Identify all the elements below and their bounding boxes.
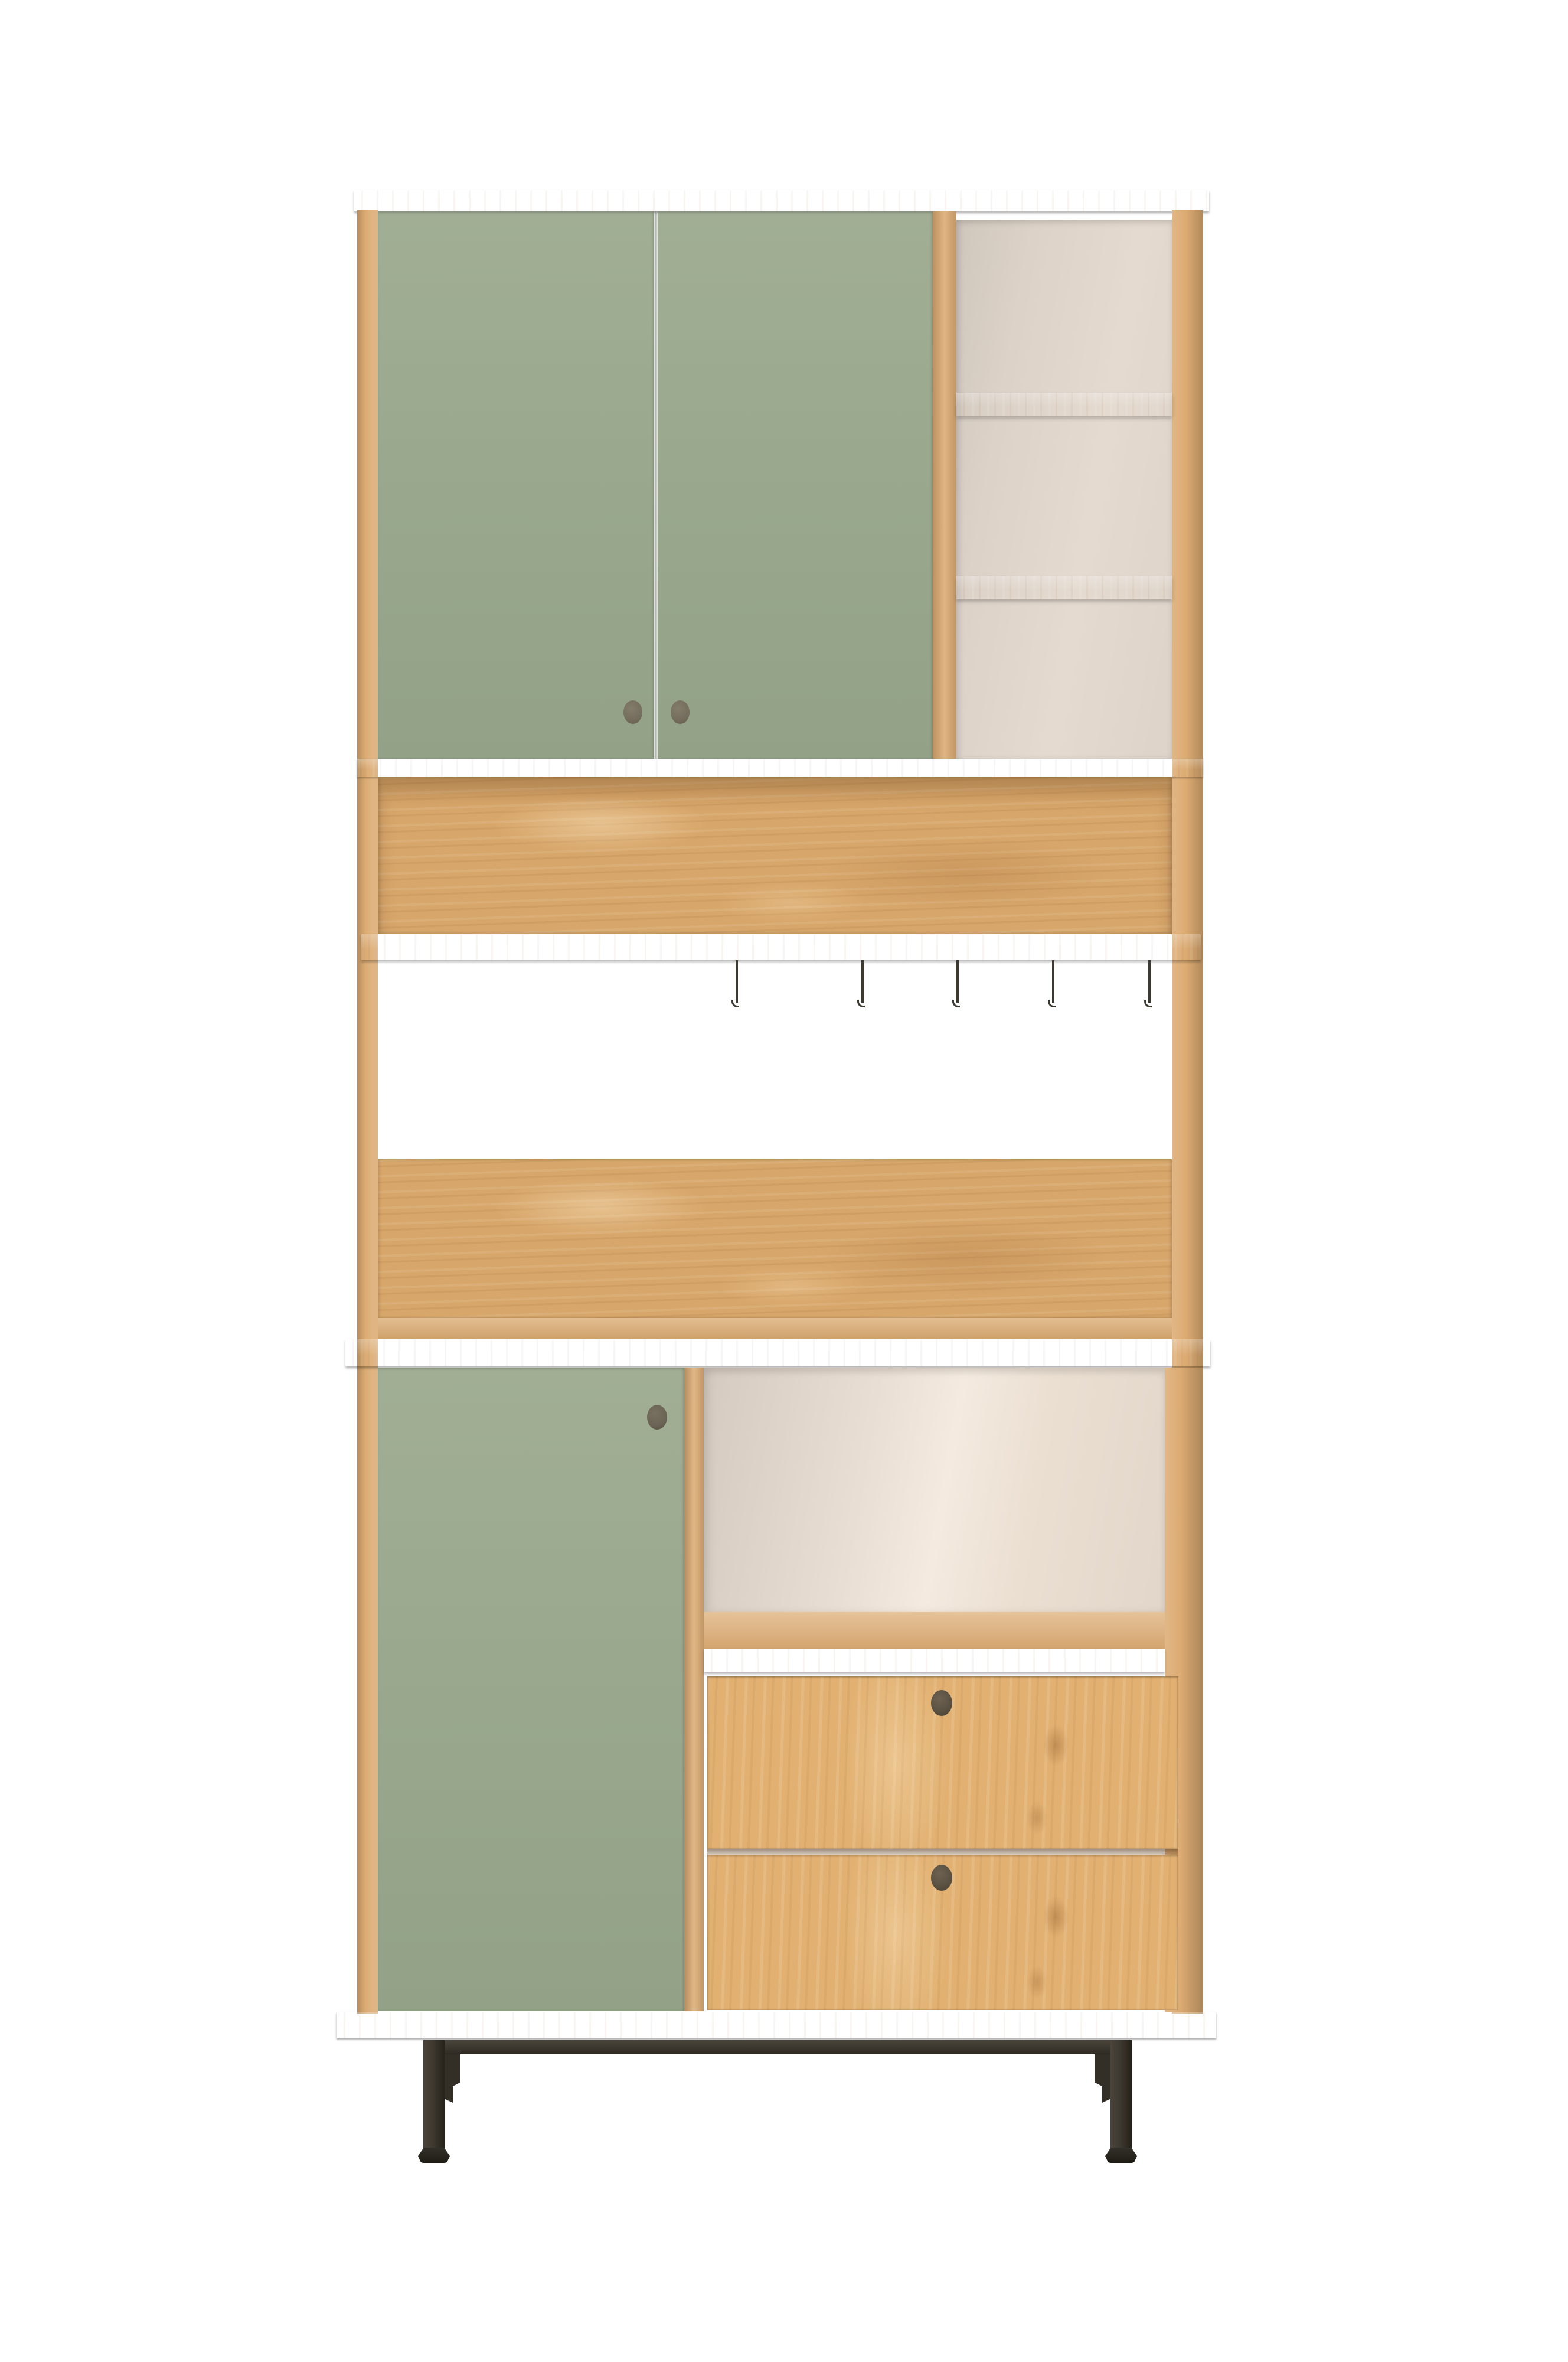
upper-door-left [378,211,654,759]
leg-foot-right [1105,2148,1137,2163]
upper-door-left-knob [623,700,642,724]
base-slab [337,2012,1216,2038]
upper-door-right [658,211,933,759]
hanging-hook-2 [861,960,864,1003]
lower-door-knob [647,1405,667,1430]
drawer-upper-knob [931,1690,952,1716]
drawer-gap [707,1849,1178,1855]
product-photo-scene [0,0,1568,2362]
leg-front-rail [423,2040,1132,2054]
upper-shelf-1 [956,393,1172,416]
leg-front-right [1110,2040,1132,2151]
niche-fascia-panel [378,777,1172,934]
hanging-hook-5 [1148,960,1151,1003]
drawer-shelf-surface [704,1612,1165,1649]
drawer-lower-knob [931,1865,952,1891]
upper-shelf-2 [956,576,1172,599]
leg-rear-right [1095,2054,1110,2103]
counter-surface [378,1318,1172,1339]
leg-front-left [423,2040,445,2151]
drawer-shelf-edge [704,1649,1165,1672]
lower-divider-stile [684,1368,704,2011]
hutch-shelf-band [357,759,1203,777]
upper-shelf-column-back [956,220,1172,759]
leg-foot-left [418,2148,450,2163]
counter-back-panel [378,1159,1172,1318]
upper-door-right-knob [671,700,690,724]
hanging-hook-1 [736,960,738,1003]
cabinet-top-slab [354,190,1209,211]
leg-rear-left [445,2054,460,2103]
left-side-frame [357,210,378,2014]
lower-door [378,1368,684,2011]
upper-divider-stile [933,211,956,759]
hanging-hook-4 [1052,960,1054,1003]
hook-rail-shelf [361,934,1201,960]
counter-slab [345,1339,1210,1366]
hanging-hook-3 [956,960,959,1003]
appliance-compartment-back [704,1368,1165,1612]
